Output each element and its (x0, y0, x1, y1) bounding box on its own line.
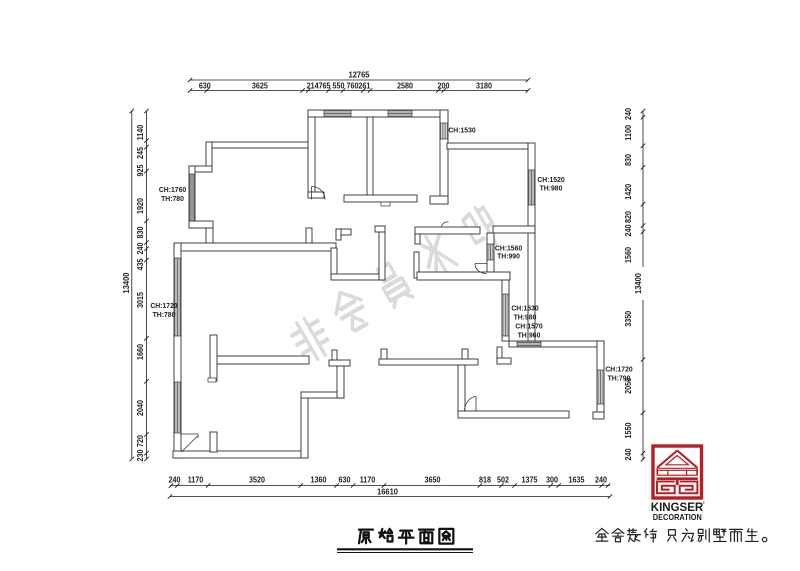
svg-text:435: 435 (136, 259, 145, 271)
svg-text:1635: 1635 (569, 475, 585, 484)
svg-text:1170: 1170 (360, 475, 376, 484)
svg-text:214765 550 760261: 214765 550 760261 (307, 81, 371, 90)
svg-text:720: 720 (136, 435, 145, 447)
svg-text:CH:1720: CH:1720 (150, 303, 177, 310)
svg-text:TH:780: TH:780 (153, 312, 176, 319)
svg-text:CH:1530: CH:1530 (511, 305, 538, 312)
svg-text:’: ’ (703, 500, 705, 509)
svg-text:820: 820 (624, 211, 633, 223)
svg-text:1170: 1170 (188, 475, 204, 484)
svg-text:3180: 3180 (476, 81, 492, 90)
svg-text:1560: 1560 (624, 247, 633, 263)
svg-text:1920: 1920 (136, 198, 145, 214)
svg-text:200: 200 (438, 81, 450, 90)
svg-text:13400: 13400 (634, 272, 643, 294)
svg-text:CH:1720: CH:1720 (605, 366, 632, 373)
svg-text:240: 240 (595, 475, 607, 484)
svg-text:16610: 16610 (377, 487, 399, 496)
svg-text:DECORATION: DECORATION (653, 513, 702, 522)
svg-text:3350: 3350 (624, 311, 633, 327)
svg-text:300: 300 (546, 475, 558, 484)
svg-text:2580: 2580 (397, 81, 413, 90)
svg-text:925: 925 (136, 165, 145, 177)
svg-text:240: 240 (624, 108, 633, 120)
svg-text:2040: 2040 (136, 400, 145, 416)
svg-text:240: 240 (624, 225, 633, 237)
svg-text:CH:1570: CH:1570 (515, 323, 542, 330)
svg-text:630: 630 (199, 81, 211, 90)
svg-text:240: 240 (624, 449, 633, 461)
svg-text:245: 245 (136, 147, 145, 159)
svg-text:CH:1560: CH:1560 (495, 245, 522, 252)
svg-text:CH:1530: CH:1530 (448, 127, 475, 134)
svg-text:3625: 3625 (252, 81, 268, 90)
svg-text:240: 240 (169, 475, 181, 484)
svg-text:3650: 3650 (425, 475, 441, 484)
svg-text:CH:1520: CH:1520 (537, 177, 564, 184)
svg-text:1360: 1360 (311, 475, 327, 484)
svg-text:TH:980: TH:980 (540, 185, 563, 192)
svg-text:CH:1760: CH:1760 (159, 187, 186, 194)
svg-text:1375: 1375 (522, 475, 538, 484)
svg-text:TH:980: TH:980 (514, 314, 537, 321)
svg-text:TH:960: TH:960 (518, 332, 541, 339)
svg-text:TH:780: TH:780 (161, 196, 184, 203)
svg-text:818: 818 (479, 475, 491, 484)
svg-text:1420: 1420 (624, 184, 633, 200)
svg-text:230: 230 (136, 450, 145, 462)
svg-text:3015: 3015 (136, 292, 145, 308)
svg-text:1550: 1550 (624, 423, 633, 439)
svg-text:830: 830 (136, 227, 145, 239)
svg-text:TH:790: TH:790 (608, 375, 631, 382)
svg-text:1660: 1660 (136, 344, 145, 360)
svg-text:502: 502 (497, 475, 509, 484)
svg-text:13400: 13400 (122, 272, 131, 294)
svg-text:830: 830 (624, 154, 633, 166)
svg-text:3520: 3520 (249, 475, 265, 484)
svg-text:1140: 1140 (136, 125, 145, 141)
svg-text:240: 240 (136, 243, 145, 255)
svg-text:12765: 12765 (349, 70, 371, 79)
svg-text:TH:990: TH:990 (497, 253, 520, 260)
svg-text:1100: 1100 (624, 125, 633, 141)
svg-text:630: 630 (339, 475, 351, 484)
